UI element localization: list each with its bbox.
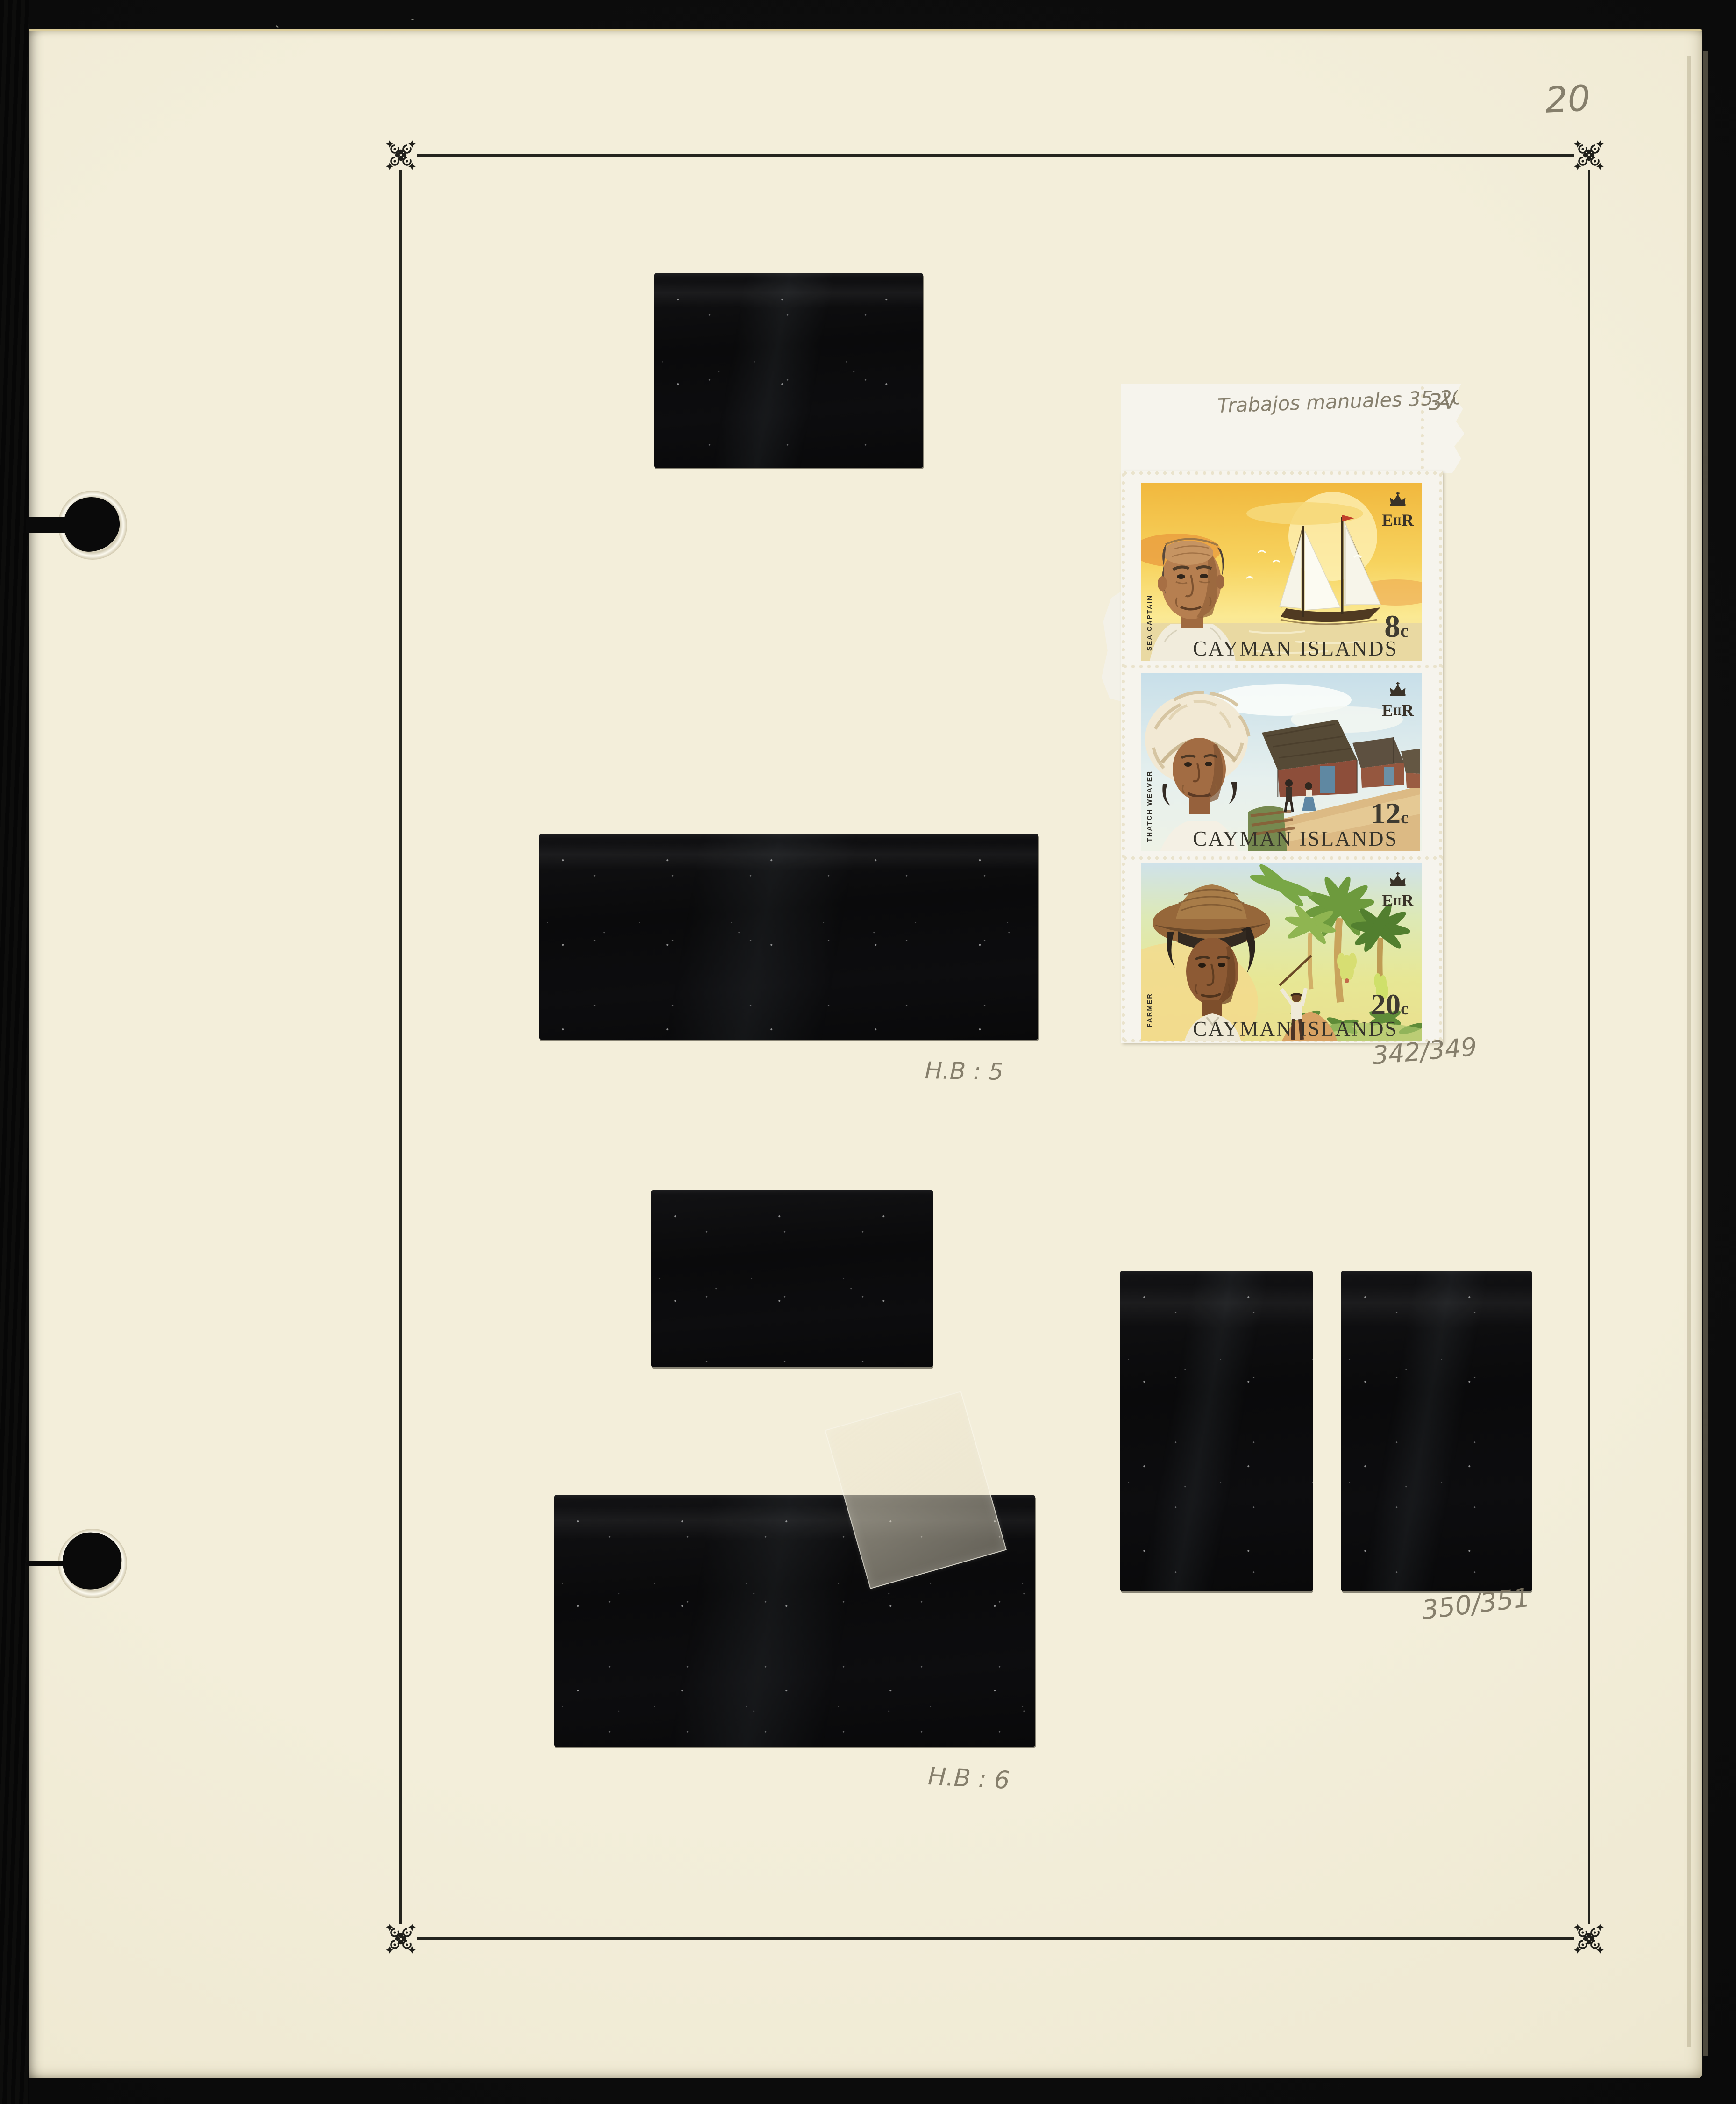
stamp-farmer: EIIR 20c CAYMAN ISLANDS FARMER [1141, 863, 1422, 1041]
stamp-sea-captain: EIIR 8c CAYMAN ISLANDS SEA CAPTAIN [1141, 483, 1422, 661]
stamp-mount [1341, 1271, 1532, 1591]
frame-top-line [417, 154, 1574, 157]
binder-post-bar [26, 517, 76, 533]
corner-ornament-icon [386, 1924, 416, 1954]
country-name: CAYMAN ISLANDS [1193, 827, 1398, 850]
perforation-column [1438, 471, 1443, 1043]
binder-post-wire [26, 1561, 79, 1566]
underlying-page-edge [1703, 51, 1708, 2056]
corner-ornament-icon [1574, 1924, 1604, 1954]
annotation-hb-bottom: H.B : 6 [927, 1762, 1010, 1795]
sea-captain-illustration: EIIR 8c CAYMAN ISLANDS SEA CAPTAIN [1141, 483, 1422, 661]
handwritten-variant-count: 3V [1427, 388, 1459, 416]
perforation-row [1121, 471, 1443, 475]
stamp-selvage: Trabajos manuales 35.20 3V [1121, 384, 1465, 473]
stamp-title: THATCH WEAVER [1145, 770, 1153, 842]
stamp-strip: EIIR 8c CAYMAN ISLANDS SEA CAPTAIN [1121, 471, 1443, 1043]
page-number: 20 [1544, 77, 1591, 121]
frame-right-line [1588, 170, 1590, 1924]
page-top-edge [27, 29, 1702, 31]
page-curl-shadow [1687, 56, 1691, 2047]
stamp-thatch-weaver: EIIR 12c CAYMAN ISLANDS THATCH WEAVER [1141, 673, 1422, 851]
stamp-mount [651, 1190, 933, 1367]
stamp-mount [1120, 1271, 1313, 1591]
frame-left-line [399, 170, 402, 1924]
annotation-hb-top: H.B : 5 [925, 1057, 1003, 1085]
corner-ornament-icon [1574, 140, 1604, 170]
farmer-illustration: EIIR 20c CAYMAN ISLANDS FARMER [1141, 863, 1422, 1041]
stamp-title: SEA CAPTAIN [1145, 594, 1153, 651]
country-name: CAYMAN ISLANDS [1193, 637, 1398, 660]
stamp-title: FARMER [1145, 993, 1153, 1027]
corner-ornament-icon [386, 140, 416, 170]
perforation-row [1121, 664, 1443, 669]
country-name: CAYMAN ISLANDS [1193, 1017, 1398, 1041]
frame-bottom-line [417, 1937, 1574, 1940]
stamp-mount [539, 834, 1038, 1040]
perforation-column [1121, 471, 1125, 1043]
thatch-weaver-illustration: EIIR 12c CAYMAN ISLANDS THATCH WEAVER [1141, 673, 1422, 851]
perforation-row [1121, 856, 1443, 860]
stamp-mount [654, 273, 923, 468]
album-binding [0, 0, 29, 2104]
